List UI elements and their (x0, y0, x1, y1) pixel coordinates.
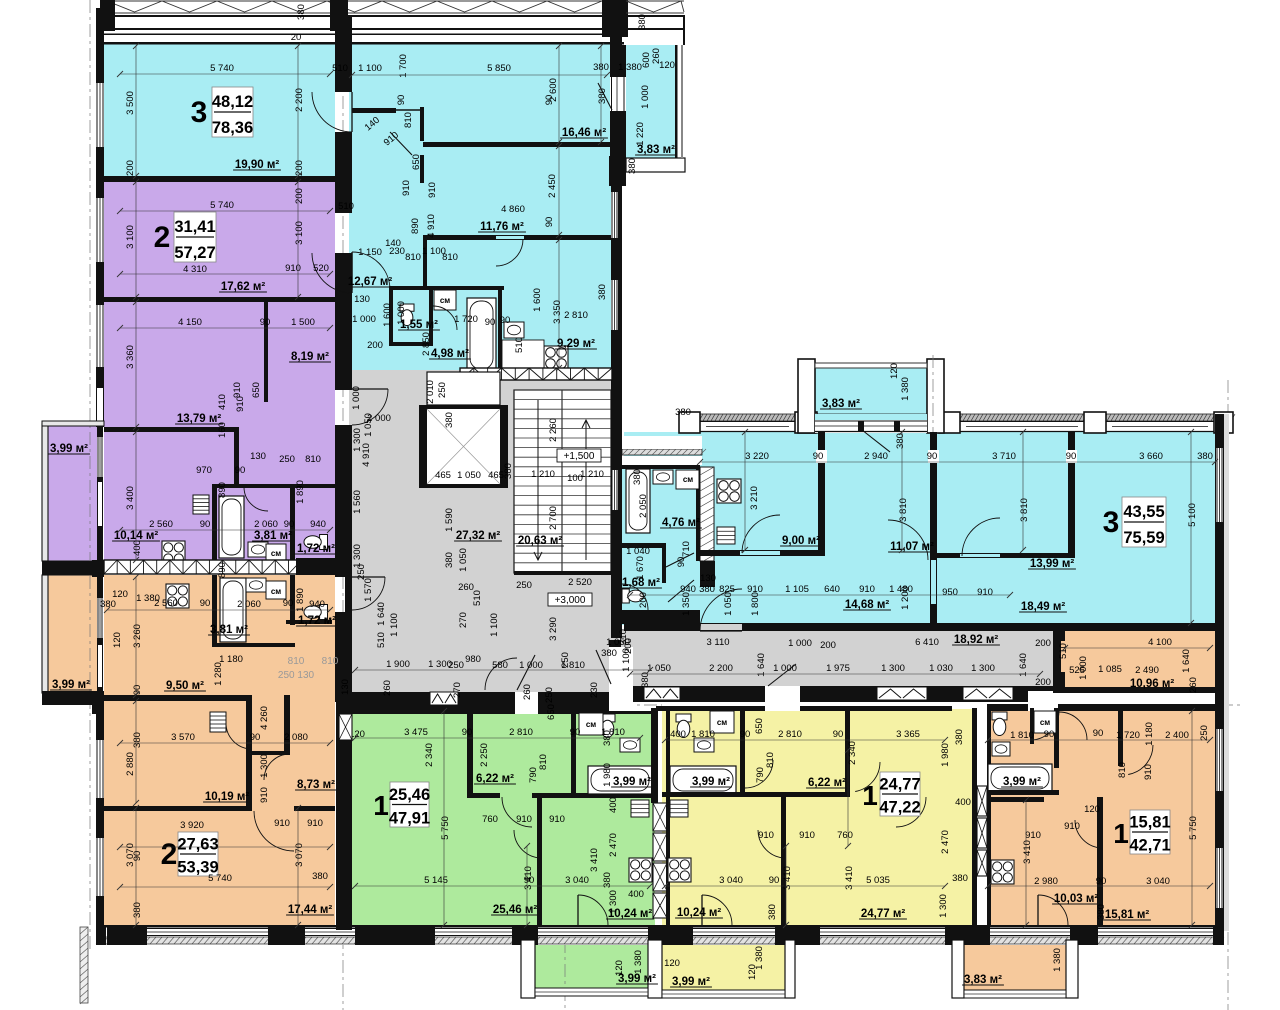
svg-text:810: 810 (403, 112, 414, 128)
svg-text:1 380: 1 380 (754, 946, 765, 970)
svg-text:1 800: 1 800 (750, 592, 761, 616)
svg-text:5 035: 5 035 (866, 875, 890, 886)
svg-text:90: 90 (1044, 729, 1055, 740)
svg-text:400: 400 (628, 889, 644, 900)
svg-text:380: 380 (1197, 451, 1213, 462)
svg-text:380: 380 (503, 463, 514, 479)
svg-text:90: 90 (200, 598, 211, 609)
svg-text:3 100: 3 100 (294, 221, 305, 245)
svg-text:465: 465 (488, 470, 504, 481)
svg-text:3 410: 3 410 (782, 866, 793, 890)
svg-text:810: 810 (765, 752, 776, 768)
svg-text:2 880: 2 880 (125, 752, 136, 776)
svg-text:520: 520 (313, 263, 329, 274)
svg-text:2 340: 2 340 (424, 743, 435, 767)
svg-text:3 410: 3 410 (589, 848, 600, 872)
svg-text:4 860: 4 860 (501, 204, 525, 215)
svg-text:380: 380 (895, 433, 906, 449)
svg-text:970: 970 (196, 465, 212, 476)
svg-text:890: 890 (410, 218, 421, 234)
svg-text:410: 410 (217, 394, 228, 410)
svg-text:42,71: 42,71 (1129, 836, 1170, 854)
svg-text:580: 580 (492, 660, 508, 671)
svg-text:3 110: 3 110 (706, 637, 729, 648)
svg-text:910: 910 (235, 396, 246, 412)
svg-text:3 040: 3 040 (565, 875, 589, 886)
svg-text:1: 1 (862, 780, 878, 811)
svg-text:1 300: 1 300 (881, 663, 905, 674)
svg-text:3 500: 3 500 (125, 91, 136, 115)
svg-text:1 220: 1 220 (635, 122, 646, 146)
svg-text:130: 130 (700, 573, 716, 584)
svg-text:2 810: 2 810 (564, 310, 588, 321)
svg-text:2 400: 2 400 (1165, 730, 1189, 741)
svg-text:8,19 м²: 8,19 м² (291, 351, 329, 363)
svg-text:1 975: 1 975 (826, 663, 850, 674)
svg-text:200: 200 (820, 640, 836, 651)
svg-text:2 560: 2 560 (149, 519, 173, 530)
svg-text:130: 130 (354, 294, 370, 305)
svg-text:17,62 м²: 17,62 м² (221, 281, 265, 293)
svg-text:380: 380 (444, 412, 455, 428)
svg-text:2 010: 2 010 (425, 380, 436, 404)
svg-text:130: 130 (340, 679, 351, 695)
svg-text:3 360: 3 360 (125, 345, 136, 369)
svg-text:1 670: 1 670 (635, 556, 646, 580)
svg-text:90: 90 (544, 217, 555, 228)
svg-text:650: 650 (546, 704, 557, 720)
svg-text:910: 910 (401, 180, 412, 196)
svg-text:3 570: 3 570 (171, 732, 195, 743)
svg-text:1 000: 1 000 (519, 660, 543, 671)
svg-text:2 470: 2 470 (608, 833, 619, 857)
svg-text:380: 380 (675, 407, 691, 418)
svg-text:57,27: 57,27 (174, 244, 215, 262)
svg-text:200: 200 (367, 340, 383, 351)
svg-text:18,49 м²: 18,49 м² (1021, 601, 1065, 613)
svg-text:90: 90 (283, 598, 294, 609)
svg-text:3 260: 3 260 (132, 624, 143, 648)
svg-text:380: 380 (952, 873, 968, 884)
svg-text:10,96 м²: 10,96 м² (1130, 678, 1174, 690)
svg-text:2: 2 (161, 838, 178, 871)
svg-text:90: 90 (1096, 876, 1107, 887)
svg-text:1 380: 1 380 (900, 377, 911, 401)
svg-text:3 040: 3 040 (719, 875, 743, 886)
svg-text:3 410: 3 410 (1022, 840, 1033, 864)
svg-text:250: 250 (356, 564, 367, 580)
svg-text:48,12: 48,12 (212, 93, 253, 111)
svg-text:4 260: 4 260 (259, 706, 270, 730)
svg-text:3,99 м²: 3,99 м² (52, 679, 90, 691)
svg-text:140: 140 (385, 238, 401, 249)
svg-text:250 130: 250 130 (278, 670, 315, 681)
svg-text:см: см (717, 718, 727, 727)
svg-text:910: 910 (307, 818, 323, 829)
svg-text:6,22 м²: 6,22 м² (476, 773, 514, 785)
svg-text:1 600: 1 600 (382, 303, 393, 327)
svg-text:9,29 м²: 9,29 м² (557, 338, 595, 350)
svg-text:1 560: 1 560 (352, 490, 363, 514)
svg-text:3 410: 3 410 (844, 866, 855, 890)
svg-text:2 060: 2 060 (254, 519, 278, 530)
svg-text:90: 90 (833, 729, 844, 740)
svg-text:950: 950 (942, 587, 958, 598)
svg-text:1 380: 1 380 (633, 950, 644, 974)
svg-text:1 180: 1 180 (1144, 722, 1155, 746)
svg-text:13,99 м²: 13,99 м² (1030, 558, 1074, 570)
svg-text:1 300: 1 300 (608, 890, 619, 914)
svg-text:100: 100 (567, 473, 583, 484)
svg-text:250: 250 (544, 687, 555, 703)
svg-text:3,81 м²: 3,81 м² (210, 624, 248, 636)
svg-text:90: 90 (260, 317, 271, 328)
svg-text:90: 90 (396, 95, 407, 106)
svg-text:380: 380 (444, 552, 455, 568)
svg-text:1 050: 1 050 (363, 413, 374, 437)
svg-text:890: 890 (217, 482, 228, 498)
svg-text:310: 310 (618, 629, 629, 645)
svg-text:1 085: 1 085 (1098, 664, 1122, 675)
svg-text:3,83 м²: 3,83 м² (822, 398, 860, 410)
svg-text:3 810: 3 810 (1019, 498, 1030, 522)
svg-text:3,99 м²: 3,99 м² (692, 776, 730, 788)
svg-text:2 810: 2 810 (778, 729, 802, 740)
svg-text:260: 260 (651, 48, 662, 64)
svg-text:15,81: 15,81 (1129, 814, 1170, 832)
svg-text:250: 250 (448, 660, 464, 671)
svg-text:2 470: 2 470 (940, 830, 951, 854)
svg-text:13,79 м²: 13,79 м² (177, 413, 221, 425)
svg-text:1 100: 1 100 (358, 63, 382, 74)
svg-text:810: 810 (1117, 762, 1128, 778)
svg-text:24,77 м²: 24,77 м² (861, 908, 905, 920)
svg-text:1 380: 1 380 (136, 593, 160, 604)
svg-text:250: 250 (516, 580, 532, 591)
svg-text:11,76 м²: 11,76 м² (480, 221, 524, 233)
svg-text:510: 510 (514, 337, 525, 353)
svg-text:510: 510 (332, 63, 348, 74)
svg-text:12,67 м²: 12,67 м² (348, 276, 392, 288)
svg-text:465: 465 (435, 470, 451, 481)
svg-text:200: 200 (125, 160, 136, 176)
svg-text:4 100: 4 100 (1148, 637, 1172, 648)
svg-text:810: 810 (288, 656, 305, 667)
svg-text:910: 910 (232, 382, 243, 398)
svg-text:19,90 м²: 19,90 м² (235, 159, 279, 171)
svg-text:910: 910 (1025, 830, 1041, 841)
svg-text:27,63: 27,63 (177, 836, 218, 854)
svg-text:1 100: 1 100 (389, 613, 400, 637)
svg-text:940: 940 (310, 519, 326, 530)
svg-text:2 450: 2 450 (547, 174, 558, 198)
svg-text:250: 250 (437, 382, 448, 398)
svg-text:3 040: 3 040 (1146, 876, 1170, 887)
svg-text:15,81 м²: 15,81 м² (1105, 909, 1149, 921)
svg-text:5 750: 5 750 (440, 816, 451, 840)
svg-text:1 890: 1 890 (295, 480, 306, 504)
svg-text:5 740: 5 740 (208, 873, 232, 884)
svg-text:90: 90 (570, 727, 581, 738)
svg-text:3 710: 3 710 (992, 451, 1016, 462)
svg-text:260: 260 (522, 684, 533, 700)
svg-text:270: 270 (452, 682, 463, 698)
svg-text:910: 910 (1064, 821, 1080, 832)
svg-text:1 380: 1 380 (1052, 948, 1063, 972)
svg-text:5 750: 5 750 (1188, 816, 1199, 840)
svg-text:1 590: 1 590 (444, 508, 455, 532)
svg-text:10,19 м²: 10,19 м² (205, 791, 249, 803)
svg-text:78,36: 78,36 (212, 119, 253, 137)
svg-text:380: 380 (296, 4, 307, 20)
svg-text:810: 810 (442, 252, 458, 263)
svg-text:14,68 м²: 14,68 м² (845, 599, 889, 611)
svg-text:1 000: 1 000 (352, 314, 376, 325)
svg-text:20,63 м²: 20,63 м² (518, 535, 562, 547)
svg-text:2 490: 2 490 (1135, 665, 1159, 676)
svg-text:4 150: 4 150 (178, 317, 202, 328)
svg-text:380: 380 (132, 902, 143, 918)
svg-text:5 740: 5 740 (210, 63, 234, 74)
svg-text:3,99 м²: 3,99 м² (672, 976, 710, 988)
svg-text:см: см (683, 475, 693, 484)
svg-text:2 060: 2 060 (237, 599, 261, 610)
svg-text:810: 810 (322, 656, 339, 667)
svg-text:120: 120 (112, 589, 128, 600)
svg-text:650: 650 (754, 718, 765, 734)
svg-text:1 300: 1 300 (971, 663, 995, 674)
svg-text:3 210: 3 210 (749, 486, 760, 510)
svg-text:910: 910 (859, 584, 875, 595)
svg-text:90: 90 (500, 315, 511, 326)
svg-text:см: см (1040, 718, 1050, 727)
svg-text:2 080: 2 080 (284, 732, 308, 743)
svg-text:260: 260 (382, 680, 393, 696)
svg-text:120: 120 (614, 960, 625, 976)
svg-text:43,55: 43,55 (1123, 503, 1164, 521)
svg-text:1 720: 1 720 (1116, 730, 1140, 741)
svg-text:1 980: 1 980 (940, 743, 951, 767)
svg-text:910: 910 (799, 830, 815, 841)
svg-text:3 220: 3 220 (745, 451, 769, 462)
svg-text:90: 90 (1093, 728, 1104, 739)
svg-text:790: 790 (755, 767, 766, 783)
svg-text:760: 760 (837, 830, 853, 841)
svg-text:17,44 м²: 17,44 м² (288, 904, 332, 916)
svg-text:16,46 м²: 16,46 м² (562, 127, 606, 139)
svg-text:90: 90 (250, 732, 261, 743)
svg-text:6 410: 6 410 (915, 637, 939, 648)
svg-text:11,07 м²: 11,07 м² (890, 541, 934, 553)
svg-text:25,46: 25,46 (389, 786, 430, 804)
svg-text:200: 200 (1035, 638, 1051, 649)
svg-text:1 100: 1 100 (621, 648, 632, 672)
svg-text:см: см (586, 720, 596, 729)
svg-text:1 640: 1 640 (376, 602, 387, 626)
svg-text:3 350: 3 350 (552, 300, 563, 324)
svg-text:4 310: 4 310 (183, 264, 207, 275)
svg-text:1 280: 1 280 (213, 662, 224, 686)
svg-text:1 700: 1 700 (398, 54, 409, 78)
svg-text:3 070: 3 070 (294, 843, 305, 867)
svg-text:2 200: 2 200 (294, 88, 305, 112)
svg-text:3,81 м²: 3,81 м² (254, 530, 292, 542)
svg-text:3 365: 3 365 (896, 729, 920, 740)
svg-text:1 720: 1 720 (454, 314, 478, 325)
svg-text:910: 910 (549, 814, 565, 825)
svg-text:710: 710 (681, 541, 692, 557)
svg-text:1,72 м²: 1,72 м² (298, 615, 336, 627)
svg-text:90: 90 (1066, 451, 1077, 462)
svg-text:380: 380 (1096, 904, 1107, 920)
svg-text:230: 230 (589, 682, 600, 698)
svg-text:120: 120 (1084, 804, 1100, 815)
svg-text:1 810: 1 810 (691, 729, 715, 740)
svg-text:380: 380 (637, 14, 648, 30)
svg-text:24,77: 24,77 (879, 776, 920, 794)
svg-text:1 000: 1 000 (640, 85, 651, 109)
svg-text:400: 400 (955, 797, 971, 808)
svg-text:2 340: 2 340 (847, 741, 858, 765)
svg-text:400: 400 (670, 729, 686, 740)
svg-text:2 050: 2 050 (638, 494, 649, 518)
svg-text:1 600: 1 600 (532, 288, 543, 312)
svg-text:18,92 м²: 18,92 м² (954, 634, 998, 646)
svg-text:380: 380 (601, 648, 617, 659)
svg-text:3 290: 3 290 (548, 617, 559, 641)
svg-text:2 940: 2 940 (864, 451, 888, 462)
svg-text:400: 400 (132, 540, 143, 556)
svg-text:2 520: 2 520 (568, 577, 592, 588)
svg-text:1 050: 1 050 (457, 470, 481, 481)
svg-text:250: 250 (560, 652, 571, 668)
svg-text:4,98 м²: 4,98 м² (431, 348, 469, 360)
svg-text:6,22 м²: 6,22 м² (808, 777, 846, 789)
svg-text:980: 980 (465, 654, 481, 665)
svg-text:1 640: 1 640 (1181, 649, 1192, 673)
svg-text:20: 20 (291, 32, 302, 43)
svg-text:510: 510 (338, 201, 354, 212)
svg-text:1: 1 (373, 790, 389, 821)
svg-text:90: 90 (485, 317, 496, 328)
svg-text:27,32 м²: 27,32 м² (456, 530, 500, 542)
svg-text:3: 3 (191, 96, 208, 129)
svg-text:2 980: 2 980 (1034, 876, 1058, 887)
svg-text:1 210: 1 210 (580, 469, 604, 480)
svg-text:1 300: 1 300 (938, 894, 949, 918)
svg-text:1 810: 1 810 (1010, 730, 1034, 741)
svg-text:90: 90 (284, 519, 295, 530)
svg-text:250: 250 (279, 454, 295, 465)
svg-text:380: 380 (132, 732, 143, 748)
svg-text:380: 380 (597, 88, 608, 104)
svg-text:790: 790 (528, 767, 539, 783)
svg-text:2 810: 2 810 (509, 727, 533, 738)
svg-text:760: 760 (482, 814, 498, 825)
svg-text:1 105: 1 105 (785, 584, 809, 595)
svg-text:3 920: 3 920 (180, 820, 204, 831)
svg-text:510: 510 (472, 590, 483, 606)
svg-text:1 640: 1 640 (1018, 653, 1029, 677)
svg-text:8,73 м²: 8,73 м² (297, 779, 335, 791)
svg-text:10,24 м²: 10,24 м² (677, 907, 721, 919)
svg-text:90: 90 (200, 519, 211, 530)
svg-text:200: 200 (294, 160, 305, 176)
svg-text:910: 910 (274, 818, 290, 829)
svg-text:510: 510 (376, 632, 387, 648)
svg-text:см: см (440, 296, 450, 305)
svg-text:380: 380 (312, 871, 328, 882)
svg-text:650: 650 (411, 154, 422, 170)
svg-text:1 050: 1 050 (723, 592, 734, 616)
svg-text:9,00 м²: 9,00 м² (782, 535, 820, 547)
svg-text:380: 380 (640, 672, 651, 688)
svg-text:9,50 м²: 9,50 м² (166, 680, 204, 692)
svg-text:120: 120 (664, 958, 680, 969)
svg-text:1 980: 1 980 (602, 763, 613, 787)
svg-text:2 250: 2 250 (479, 743, 490, 767)
svg-text:200: 200 (1035, 677, 1051, 688)
svg-text:130: 130 (250, 451, 266, 462)
svg-text:380: 380 (632, 469, 643, 485)
svg-text:910: 910 (285, 263, 301, 274)
svg-text:1: 1 (1113, 818, 1129, 849)
svg-text:1 000: 1 000 (1078, 656, 1089, 680)
svg-text:3 475: 3 475 (404, 727, 428, 738)
svg-text:1 380: 1 380 (618, 62, 642, 73)
svg-text:5 145: 5 145 (424, 875, 448, 886)
svg-text:5 740: 5 740 (210, 200, 234, 211)
svg-text:1 030: 1 030 (929, 663, 953, 674)
svg-text:910: 910 (516, 814, 532, 825)
svg-text:380: 380 (954, 729, 965, 745)
svg-text:2 200: 2 200 (709, 663, 733, 674)
svg-text:260: 260 (1188, 677, 1199, 693)
svg-text:1 040: 1 040 (626, 546, 650, 557)
svg-text:810: 810 (405, 252, 421, 263)
svg-text:910: 910 (977, 587, 993, 598)
svg-text:910: 910 (259, 787, 270, 803)
svg-text:5 850: 5 850 (487, 63, 511, 74)
svg-text:3: 3 (1103, 506, 1120, 539)
svg-text:1 890: 1 890 (295, 588, 306, 612)
svg-text:4,76 м²: 4,76 м² (662, 517, 700, 529)
svg-text:3 400: 3 400 (125, 486, 136, 510)
svg-text:1 900: 1 900 (386, 659, 410, 670)
svg-text:380: 380 (100, 599, 116, 610)
svg-text:3 810: 3 810 (898, 498, 909, 522)
svg-text:380: 380 (597, 284, 608, 300)
svg-text:3 070: 3 070 (125, 843, 136, 867)
svg-text:90: 90 (676, 557, 687, 568)
svg-text:5 100: 5 100 (1187, 503, 1198, 527)
svg-text:1 200: 1 200 (900, 586, 911, 610)
svg-text:90: 90 (740, 729, 751, 740)
svg-text:1,72 м²: 1,72 м² (297, 543, 335, 555)
svg-text:+3,000: +3,000 (555, 595, 586, 606)
svg-text:47,22: 47,22 (879, 798, 920, 816)
svg-text:3,99 м²: 3,99 м² (613, 776, 651, 788)
svg-text:1 300: 1 300 (259, 754, 270, 778)
svg-text:250: 250 (1199, 725, 1210, 741)
svg-text:3,99 м²: 3,99 м² (50, 443, 88, 455)
svg-text:120: 120 (112, 632, 123, 648)
svg-text:650: 650 (251, 382, 262, 398)
svg-text:90: 90 (235, 465, 246, 476)
svg-text:1 640: 1 640 (756, 653, 767, 677)
svg-text:10,03 м²: 10,03 м² (1054, 893, 1098, 905)
svg-text:910: 910 (758, 830, 774, 841)
